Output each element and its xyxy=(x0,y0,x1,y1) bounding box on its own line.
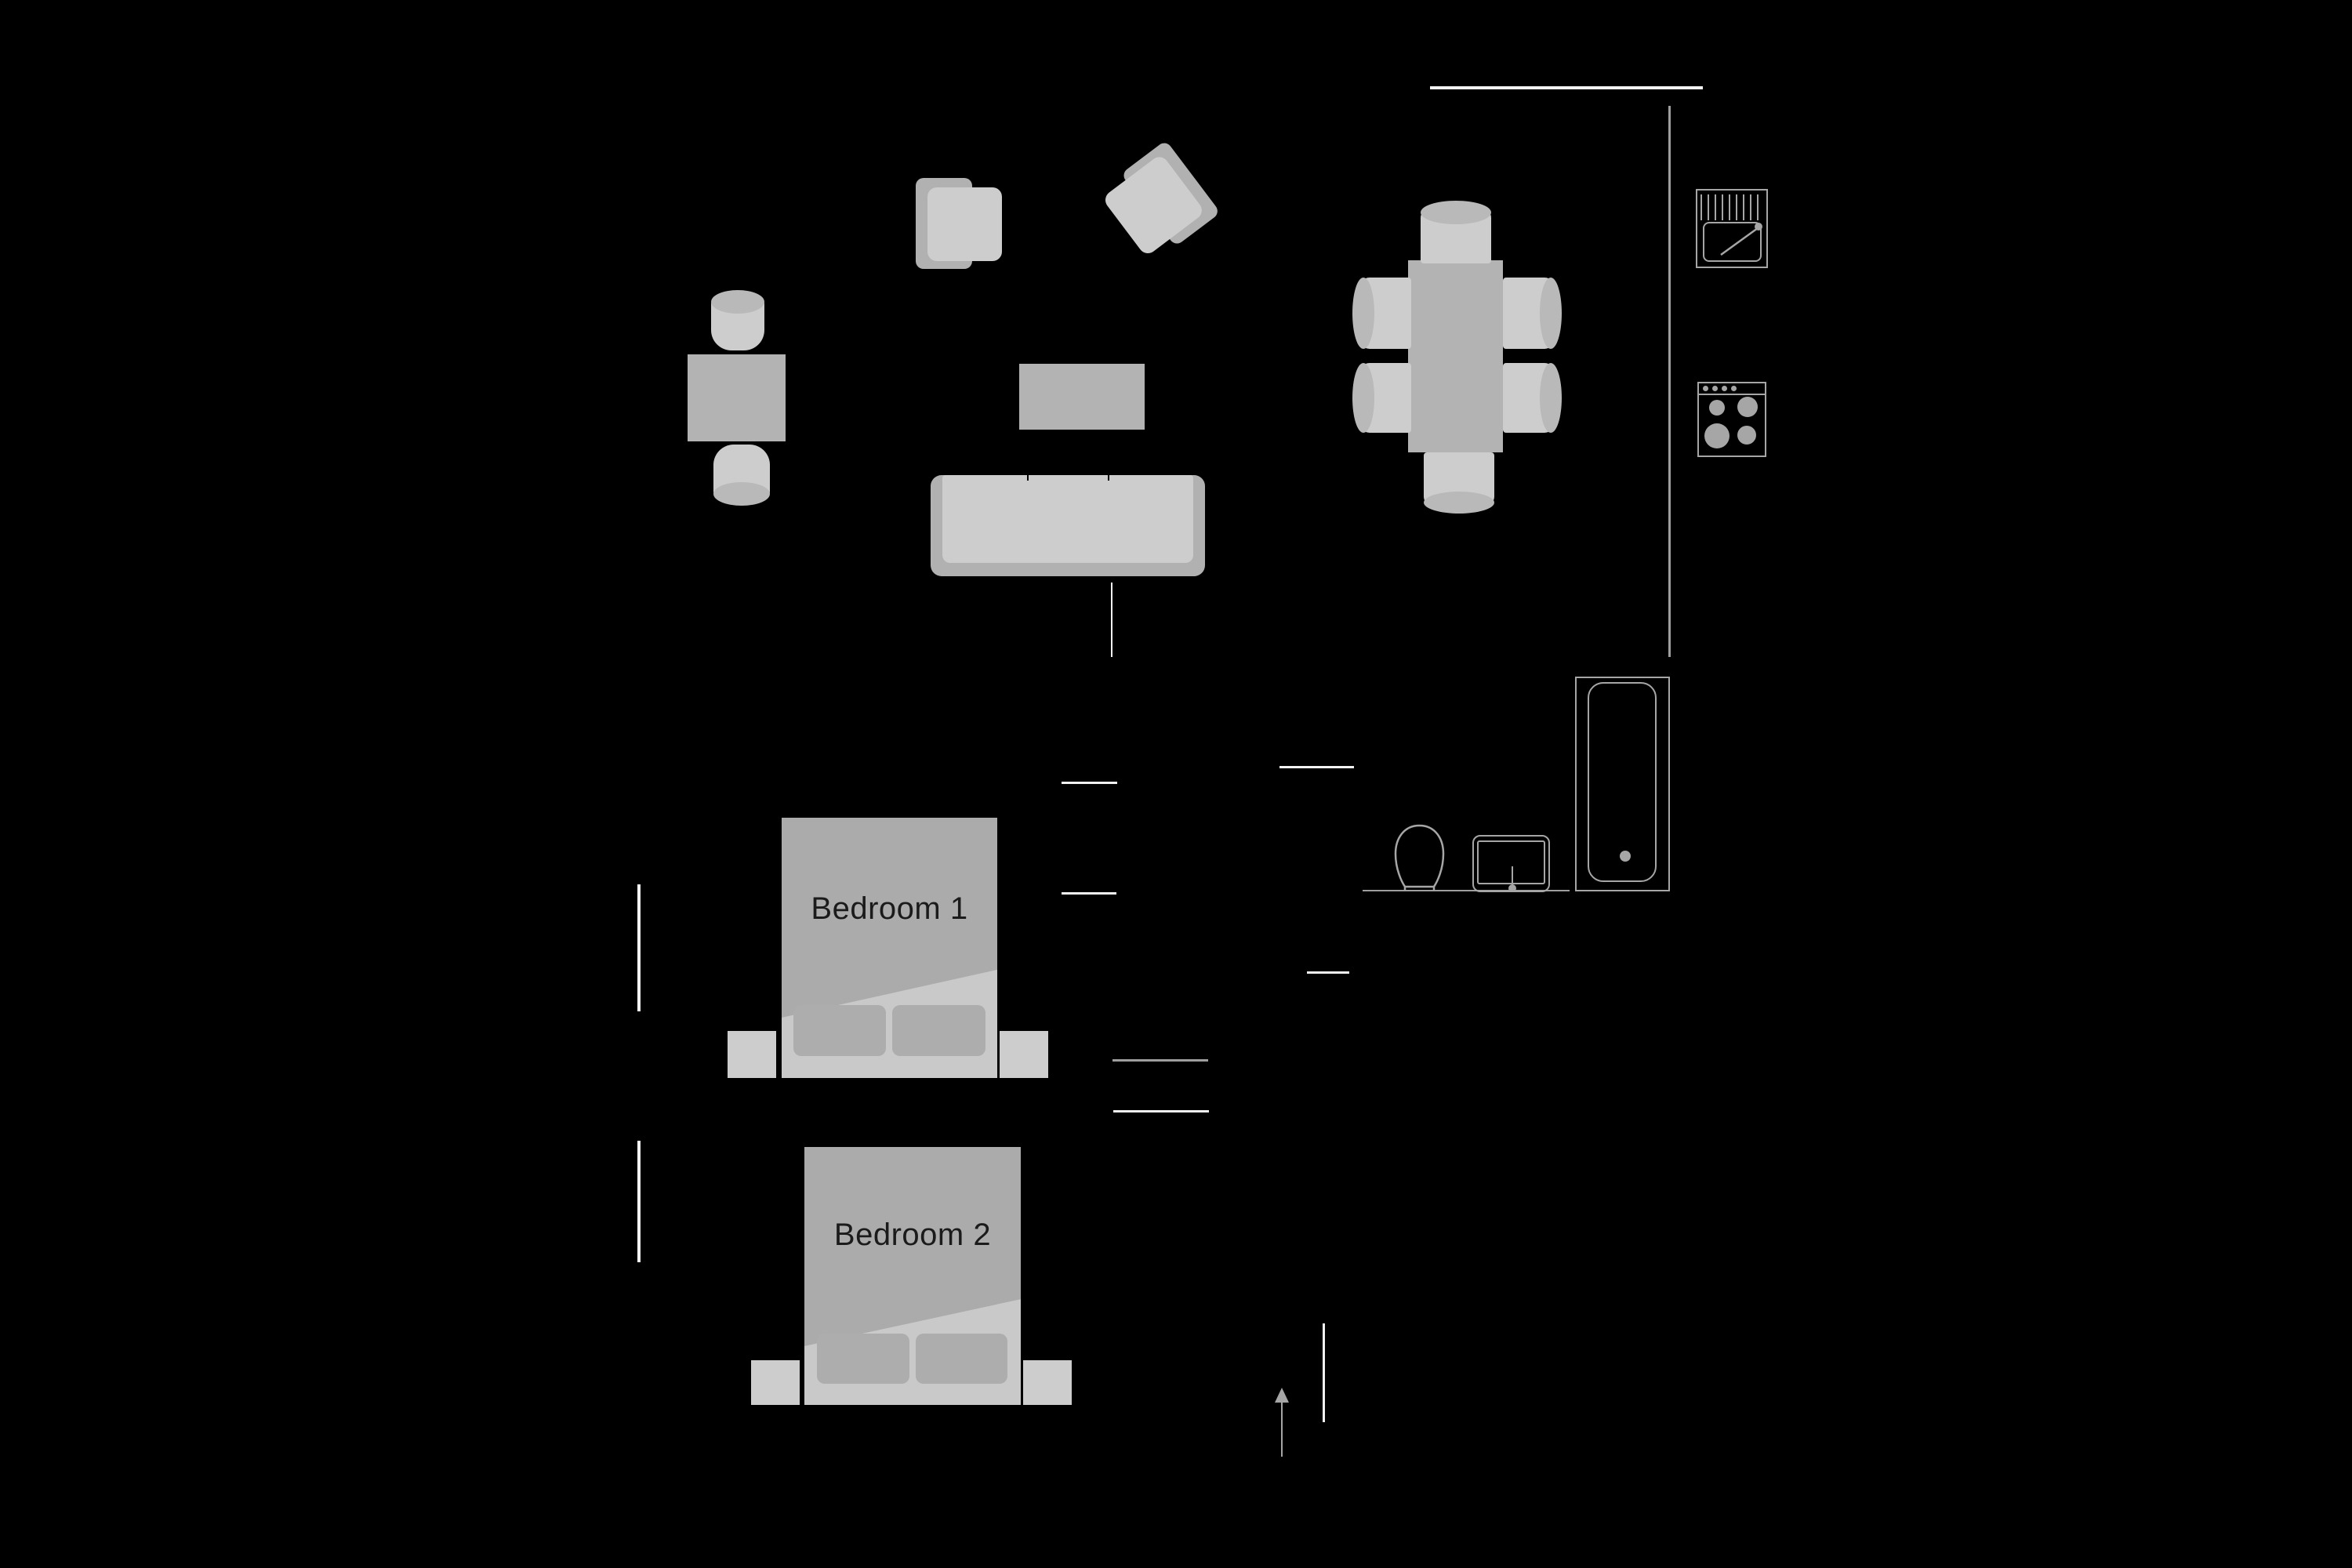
bathtub xyxy=(1575,677,1670,891)
stove-knob xyxy=(1731,386,1737,391)
sofa xyxy=(931,475,1205,576)
stool xyxy=(713,445,770,506)
side-table xyxy=(688,354,786,441)
stove-burner xyxy=(1737,397,1758,417)
washbasin-faucet-dot xyxy=(1508,884,1516,892)
dining-table xyxy=(1408,260,1503,452)
room-label-bedroom-1: Bedroom 1 xyxy=(782,893,997,924)
floor-plan: Bedroom 1 Bedroom 2 xyxy=(0,0,2352,1568)
sofa-cushion-divider xyxy=(1027,475,1029,481)
wall-segment xyxy=(1062,892,1116,895)
nightstand xyxy=(1023,1360,1072,1405)
wall-segment xyxy=(1307,971,1349,974)
dining-chair-right xyxy=(1503,363,1562,433)
wall-segment xyxy=(637,1141,641,1262)
bed-pillow xyxy=(817,1334,909,1384)
stove-burner xyxy=(1737,426,1756,445)
sofa-cushion-divider xyxy=(1108,475,1109,481)
washbasin xyxy=(1472,835,1550,892)
bed-pillow xyxy=(892,1005,985,1056)
wall-segment xyxy=(637,884,641,1011)
nightstand xyxy=(728,1031,776,1078)
stove-knob xyxy=(1722,386,1727,391)
window-line xyxy=(1430,86,1703,89)
toilet xyxy=(1392,824,1446,893)
armchair-rotated xyxy=(1097,140,1221,265)
entrance-arrow-icon xyxy=(1275,1388,1289,1458)
stove-knob xyxy=(1712,386,1718,391)
stove-knob xyxy=(1703,386,1708,391)
wall-segment xyxy=(1112,1059,1208,1062)
dining-chair-right xyxy=(1503,278,1562,349)
wall-segment xyxy=(1113,1110,1209,1112)
sofa-seat xyxy=(942,475,1193,563)
armchair-cushion xyxy=(1102,154,1205,257)
dining-chair-top xyxy=(1421,201,1491,263)
floor-lamp-line xyxy=(1111,583,1112,657)
sink-faucet-icon xyxy=(1697,191,1766,267)
nightstand xyxy=(751,1360,800,1405)
bed-pillow xyxy=(916,1334,1007,1384)
room-label-bedroom-2: Bedroom 2 xyxy=(804,1219,1021,1250)
stove xyxy=(1697,382,1766,457)
wall-segment xyxy=(1279,766,1354,768)
stove-burner xyxy=(1709,400,1725,416)
dining-chair-bottom xyxy=(1424,452,1494,514)
bathtub-drain xyxy=(1620,851,1631,862)
bed-pillow xyxy=(793,1005,886,1056)
bed: Bedroom 1 xyxy=(782,818,997,1078)
dining-chair-left xyxy=(1352,278,1411,349)
kitchen-wall-line xyxy=(1668,106,1671,657)
coffee-table xyxy=(1019,364,1145,430)
armchair-cushion xyxy=(927,187,1002,261)
stove-panel-divider xyxy=(1699,394,1765,395)
wall-segment xyxy=(1062,782,1117,784)
stool xyxy=(711,290,764,350)
entrance-wall-line xyxy=(1323,1323,1325,1422)
kitchen-sink xyxy=(1696,189,1768,268)
nightstand xyxy=(1000,1031,1048,1078)
bed: Bedroom 2 xyxy=(804,1147,1021,1405)
stove-burner xyxy=(1704,423,1730,448)
dining-chair-left xyxy=(1352,363,1411,433)
